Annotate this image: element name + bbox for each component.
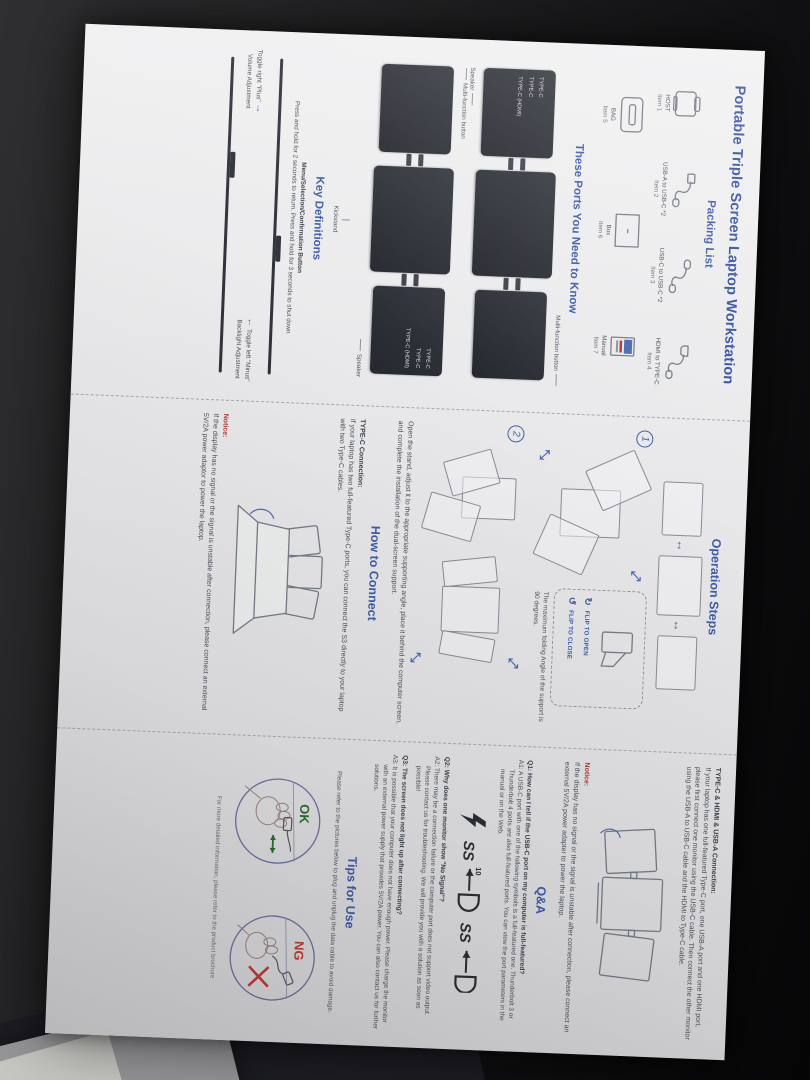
- device-flat-diagram: ↔ ↔: [651, 431, 707, 740]
- triple-screen-front-diagram: [586, 818, 677, 989]
- step-2-row: 2 ⤢ ⤡: [408, 422, 524, 733]
- notice-title: Notice:: [582, 762, 590, 786]
- center-screen-back: [370, 165, 454, 274]
- arrow-right-icon: →: [253, 103, 264, 113]
- panel-packing: Portable Triple Screen Laptop Workstatio…: [71, 24, 765, 421]
- diagonal-arrow-icon: ⤢: [628, 571, 644, 582]
- device-standing-diagram: [416, 447, 524, 547]
- ok-badge: OK: [297, 804, 313, 825]
- rotate-ccw-icon: ↺: [566, 597, 577, 606]
- ng-plug-diagram: NG: [225, 910, 321, 1006]
- multi-connection-title: TYPE-C & HDMI & USB-A Connection:: [709, 768, 721, 894]
- packing-item-bag: BAG Item 5: [600, 60, 651, 171]
- notice-body: If the display has no signal or the sign…: [557, 762, 580, 1033]
- diagonal-arrow-icon: ⤡: [536, 449, 552, 460]
- left-screen-back: [379, 64, 454, 155]
- multi-function-button-label: Multi-function button: [460, 65, 470, 139]
- tips-heading: Tips for Use: [338, 753, 363, 1032]
- svg-text:SS: SS: [456, 922, 474, 943]
- flip-callout: ↻ FLIP TO OPEN ↺ FLIP TO CLOSE: [550, 588, 648, 710]
- bag-icon: [614, 60, 650, 170]
- toggle-left-label: ← Toggle left "Minus" Backlight Adjustme…: [231, 317, 257, 382]
- double-arrow-icon: ↔: [671, 619, 685, 632]
- type-c-ports-label: TYPE-C TYPE-C TYPE-C (HDMI): [513, 76, 546, 117]
- device-open-diagram: ⤢ ⤡: [411, 550, 519, 664]
- hinge-connector: [503, 277, 521, 292]
- hinge-connector: [508, 157, 526, 172]
- usb-c-to-usb-c-cable-icon: [662, 234, 697, 317]
- multi-connection-body: If your laptop has one full-featured Typ…: [677, 766, 712, 1039]
- panel-operation: Operation Steps ↔ ↔ 1 ⤢ ⤡: [57, 393, 750, 755]
- manual-leaflet: Portable Triple Screen Laptop Workstatio…: [45, 24, 765, 1060]
- device-unfolding-diagram: ⤢ ⤡: [530, 451, 653, 584]
- step-1-badge: 1: [636, 430, 654, 448]
- packing-item-usba-cable: USB-A to USB-C *2 Item 2: [651, 148, 701, 231]
- host-device-icon: [669, 62, 704, 145]
- fold-angle-note: The maximum folding Angle of the support…: [526, 591, 550, 730]
- panel-qa-tips: TYPE-C & HDMI & USB-A Connection: If you…: [45, 728, 737, 1060]
- flip-to-close-label: FLIP TO CLOSE: [565, 610, 574, 659]
- right-screen-back: [472, 290, 547, 381]
- hdmi-to-type-c-cable-icon: [659, 321, 694, 404]
- svg-text:SS: SS: [459, 840, 477, 861]
- left-screen-back: TYPE-C TYPE-C TYPE-C (HDMI): [481, 68, 556, 159]
- usb-symbols-row: SS 10 SS: [444, 757, 490, 1037]
- speaker-label: Speaker: [355, 336, 364, 377]
- ok-plug-diagram: OK: [230, 773, 326, 869]
- hinge-connector: [406, 153, 424, 168]
- manual-booklet-icon: [605, 291, 641, 401]
- device-back-view-top: Multi-function button TYPE-C TYPE-C TYPE…: [468, 68, 561, 385]
- type-c-connection-body: If your laptop has two full-featured Typ…: [336, 418, 356, 711]
- type-c-connection-title: TYPE-C Connection:: [356, 419, 366, 488]
- arrow-left-icon: ←: [244, 317, 255, 327]
- thunderbolt-icon: [459, 812, 486, 827]
- support-stand-icon: [595, 626, 637, 674]
- packing-item-host: HOST Item 1: [654, 62, 704, 145]
- diagonal-arrow-icon: ⤡: [407, 652, 423, 663]
- svg-text:10: 10: [473, 867, 482, 876]
- footer-note: For more detailed information, please re…: [207, 748, 225, 1027]
- packing-item-box: Box Item 6: [595, 175, 646, 286]
- plug-examples: OK: [224, 750, 327, 1028]
- ng-badge: NG: [292, 941, 308, 961]
- laptop-with-screens-diagram: [224, 482, 331, 656]
- flip-to-open-label: FLIP TO OPEN: [582, 611, 591, 656]
- diagonal-arrow-icon: ⤢: [505, 658, 521, 669]
- usb-ss-dp-icon: SS: [454, 922, 478, 993]
- step-1-row: 1 ⤢ ⤡ ↻ FLIP TO OPEN: [518, 426, 654, 738]
- hinge-connector: [401, 273, 419, 288]
- device-back-view-bottom: Multi-function button TYPE-C TYPE-C TYPE…: [366, 64, 459, 381]
- toggle-right-label: Toggle right "Plus" → Volume Adjustment: [242, 49, 268, 113]
- multi-function-button-label: Multi-function button: [552, 315, 562, 389]
- packing-grid: HOST Item 1 USB-A to USB-C *2 Item 2 USB…: [583, 59, 704, 403]
- step-2-badge: 2: [507, 425, 525, 443]
- usb-a-to-usb-c-cable-icon: [666, 148, 701, 231]
- flip-to-close-row: ↺ FLIP TO CLOSE: [562, 597, 577, 699]
- packing-item-manual: Manual Item 7: [590, 291, 641, 402]
- box-icon: [610, 176, 646, 286]
- flip-to-open-row: ↻ FLIP TO OPEN: [578, 597, 593, 699]
- photo-scene: Portable Triple Screen Laptop Workstatio…: [0, 0, 810, 1080]
- packing-item-hdmi-cable: HDMI to TYPE-C Item 4: [644, 320, 694, 403]
- qa-heading: Q&A: [529, 761, 554, 1040]
- double-arrow-icon: ↔: [674, 539, 688, 552]
- notice-title: Notice:: [221, 414, 229, 438]
- notice-body: If the display has no signal or the sign…: [197, 413, 219, 711]
- usb-ss-10-dp-icon: SS 10: [457, 840, 484, 911]
- rotate-cw-icon: ↻: [582, 597, 593, 606]
- type-c-ports-label: TYPE-C TYPE-C TYPE-C (HDMI): [401, 328, 434, 369]
- kickstand-leader-line: [342, 219, 350, 220]
- packing-item-usbc-cable: USB-C to USB-C *2 Item 3: [648, 234, 698, 317]
- right-screen-back: TYPE-C TYPE-C TYPE-C (HDMI): [370, 286, 445, 377]
- page-title: Portable Triple Screen Laptop Workstatio…: [719, 63, 749, 407]
- center-screen-back: [472, 170, 556, 279]
